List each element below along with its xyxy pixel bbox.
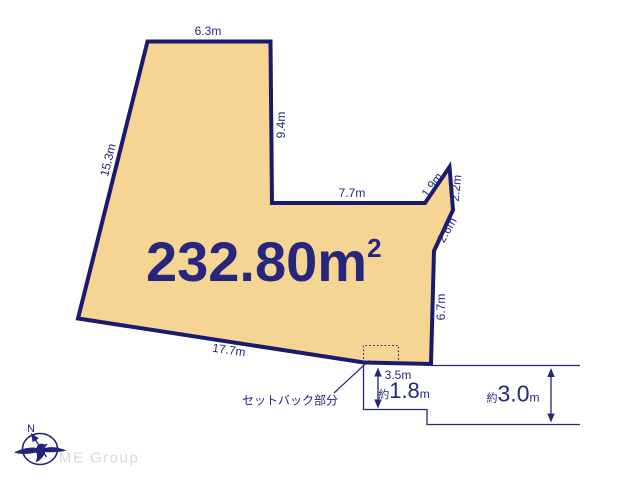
setback-label: セットバック部分: [242, 392, 338, 409]
north-label: N: [27, 423, 35, 435]
area-unit: m: [317, 230, 367, 293]
plot-polygon: [78, 42, 453, 365]
area-value: 232.80: [146, 230, 317, 293]
dim-label-notch-bottom: 7.7m: [339, 187, 366, 199]
side-road-width-label: 約 3.0 m: [487, 383, 540, 406]
dim-label-right-lower: 6.7m: [435, 294, 447, 321]
area-label: 232.80m2: [146, 234, 382, 290]
front-road-width-value: 1.8: [389, 380, 420, 402]
front-road-width-unit: m: [420, 388, 430, 400]
side-road-width-value: 3.0: [498, 383, 530, 406]
dim-label-spike-right: 2.2m: [449, 174, 464, 202]
front-road-approx-prefix: 約: [378, 390, 389, 401]
area-superscript: 2: [367, 233, 381, 263]
dim-label-right-upper: 9.4m: [275, 112, 287, 139]
dim-label-top-edge: 6.3m: [195, 25, 222, 37]
side-road-width-unit: m: [529, 392, 539, 404]
side-road-approx-prefix: 約: [487, 394, 498, 405]
logo-text: ME Group: [59, 450, 139, 467]
front-road-width-label: 約 1.8 m: [378, 380, 430, 402]
land-plot-diagram: 6.3m 9.4m 15.3m 7.7m 1.9m 2.2m 2.6m 6.7m…: [0, 0, 640, 480]
